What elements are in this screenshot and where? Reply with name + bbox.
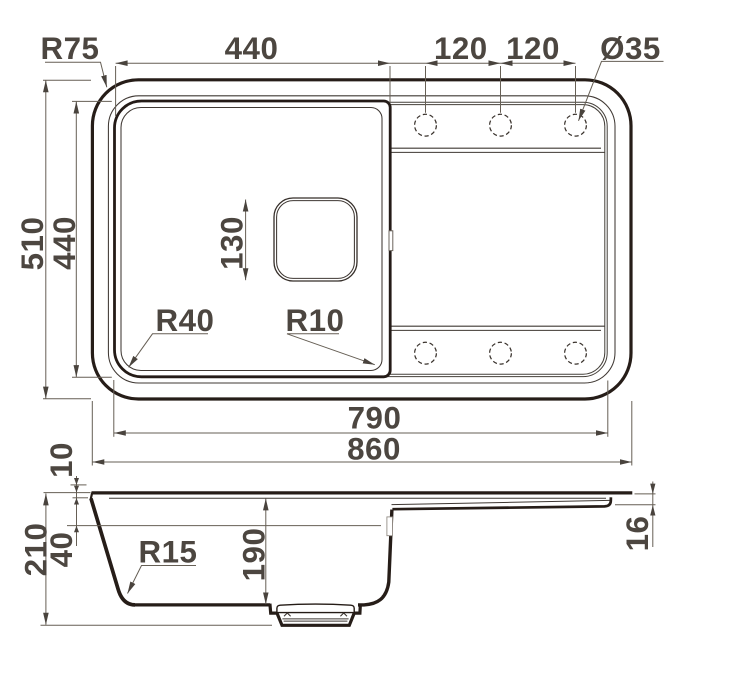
svg-text:440: 440 [225,31,279,66]
svg-text:190: 190 [237,528,272,582]
svg-text:120: 120 [506,31,560,66]
svg-text:Ø35: Ø35 [600,31,661,66]
svg-text:R75: R75 [41,31,100,66]
svg-text:120: 120 [434,31,488,66]
svg-text:R15: R15 [139,535,198,570]
svg-text:40: 40 [44,532,79,568]
svg-text:790: 790 [348,400,402,435]
svg-text:R10: R10 [286,303,345,338]
svg-text:860: 860 [347,431,401,466]
svg-text:510: 510 [15,217,50,271]
svg-text:10: 10 [44,442,79,478]
svg-text:R40: R40 [156,303,215,338]
svg-text:130: 130 [215,216,250,270]
svg-text:440: 440 [47,216,82,270]
svg-text:16: 16 [620,516,655,552]
